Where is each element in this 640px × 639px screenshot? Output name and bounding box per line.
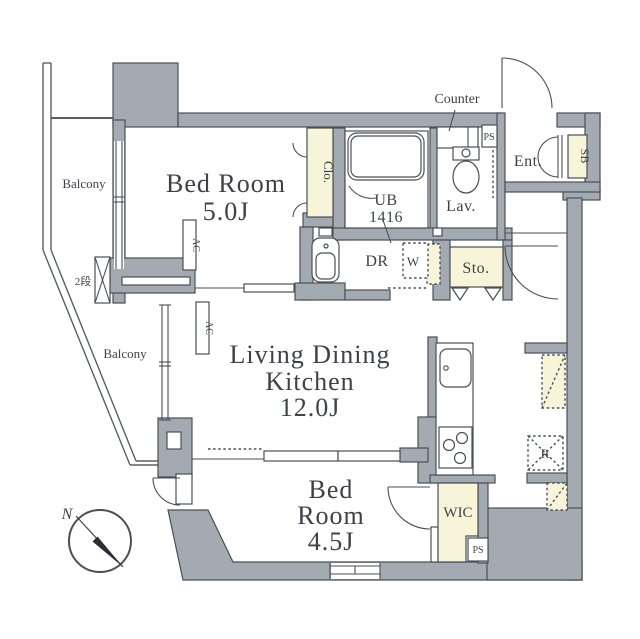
label-bedroom1-size: 5.0J <box>203 197 250 226</box>
window-bedroom2 <box>330 563 380 579</box>
label-bedroom2-1: Bed <box>309 475 354 504</box>
entry-door <box>502 58 552 108</box>
label-ldk-1: Living Dining <box>229 340 390 369</box>
label-ac-living: AC <box>203 321 214 335</box>
label-bedroom2-size: 4.5J <box>308 527 355 556</box>
label-lavatory: Lav. <box>446 198 476 215</box>
compass <box>69 510 131 572</box>
counter <box>437 127 478 148</box>
label-wic: WIC <box>443 505 472 521</box>
label-ldk-2: Kitchen <box>265 367 354 396</box>
label-ldk-size: 12.0J <box>280 393 341 422</box>
label-closet: Clo. <box>321 161 336 183</box>
label-bedroom2-2: Room <box>297 501 365 530</box>
washer-side-shelf <box>427 244 440 284</box>
floor-plan-canvas: Bed Room 5.0J Living Dining Kitchen 12.0… <box>0 0 640 639</box>
label-refrigerator: R <box>541 446 550 461</box>
label-ac-bedroom1: AC <box>190 238 201 252</box>
wall-slot <box>122 277 190 285</box>
wic-door <box>388 487 430 529</box>
balcony-step-box <box>95 257 110 303</box>
label-entrance: Ent. <box>514 153 542 170</box>
label-washer: W <box>407 254 420 269</box>
label-shoe-box: SB <box>578 149 592 164</box>
label-bedroom1: Bed Room <box>166 169 286 198</box>
label-north: N <box>61 506 74 523</box>
label-steps: 2段 <box>75 274 92 288</box>
sliding-door-bedroom2 <box>338 451 400 461</box>
label-ps-bottom: PS <box>472 545 483 556</box>
window-living <box>159 305 171 420</box>
label-storage: Sto. <box>462 260 489 277</box>
sliding-door-bedroom2 <box>264 451 338 461</box>
label-counter: Counter <box>434 92 479 107</box>
shelf-upper <box>542 355 565 408</box>
closet-doors <box>293 143 307 217</box>
label-balcony-living: Balcony <box>103 346 147 361</box>
sliding-door-bedroom1 <box>244 284 294 292</box>
label-unit-bath-size: 1416 <box>369 209 403 226</box>
label-balcony-bedroom: Balcony <box>62 176 106 191</box>
hall-door <box>505 246 558 299</box>
label-unit-bath: UB <box>374 192 397 209</box>
label-ps-top: PS <box>483 132 494 143</box>
labels: Bed Room 5.0J Living Dining Kitchen 12.0… <box>61 92 592 556</box>
label-dressing-room: DR <box>365 253 388 270</box>
floor-plan: Bed Room 5.0J Living Dining Kitchen 12.0… <box>0 0 640 639</box>
toilet-bowl <box>453 161 479 193</box>
